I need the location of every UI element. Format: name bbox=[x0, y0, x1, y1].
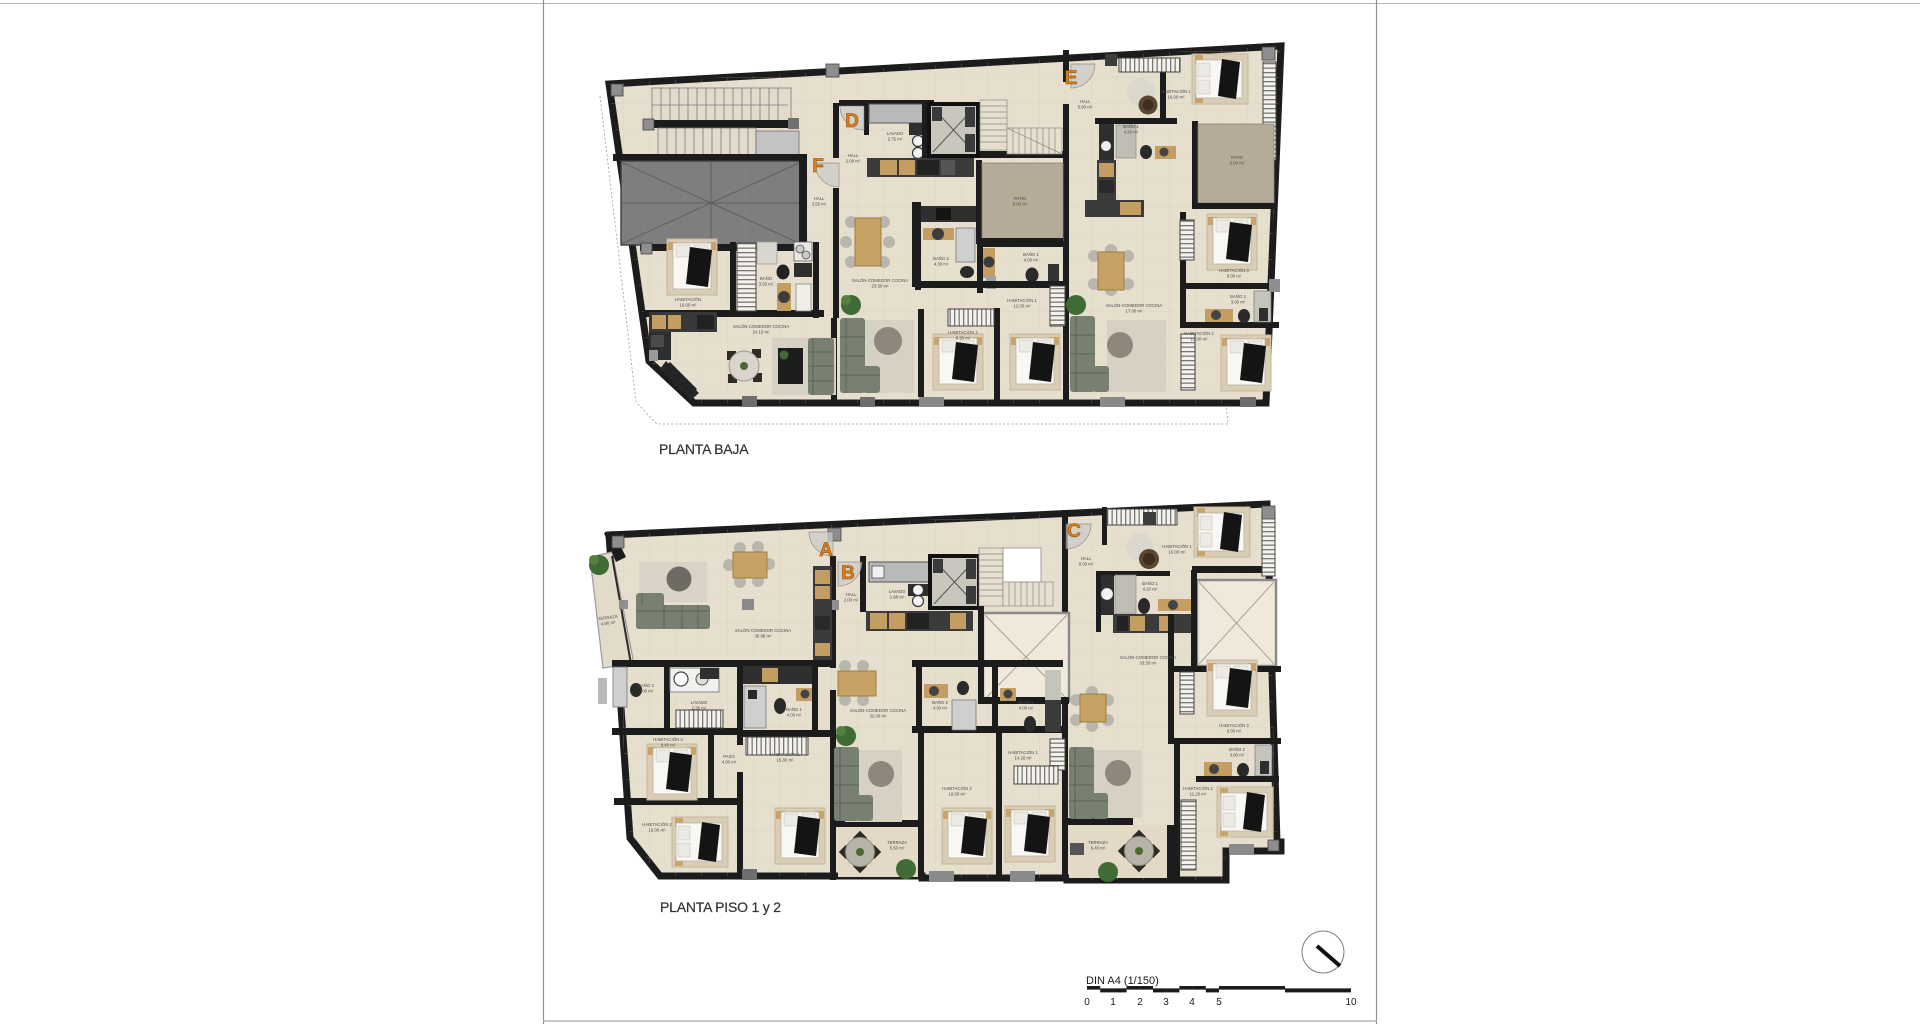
svg-text:A: A bbox=[819, 540, 833, 561]
svg-text:32.00 m²: 32.00 m² bbox=[870, 714, 888, 719]
svg-text:4.00 m²: 4.00 m² bbox=[1024, 258, 1039, 263]
svg-text:HABITACIÓN 2: HABITACIÓN 2 bbox=[948, 330, 978, 335]
svg-text:12.00 m²: 12.00 m² bbox=[1014, 304, 1032, 309]
svg-text:C: C bbox=[1067, 521, 1081, 542]
svg-text:6.40 m²: 6.40 m² bbox=[1091, 846, 1106, 851]
svg-text:HABITACIÓN 3: HABITACIÓN 3 bbox=[653, 737, 683, 742]
svg-text:9.00 m²: 9.00 m² bbox=[1230, 161, 1245, 166]
svg-text:1.98 m²: 1.98 m² bbox=[890, 595, 905, 600]
svg-text:9.00 m²: 9.00 m² bbox=[1227, 274, 1242, 279]
svg-text:24.10 m²: 24.10 m² bbox=[753, 330, 771, 335]
svg-text:SALÓN COMEDOR COCINA: SALÓN COMEDOR COCINA bbox=[735, 628, 791, 633]
svg-text:HABITACIÓN 1: HABITACIÓN 1 bbox=[1008, 750, 1038, 755]
svg-text:HALL: HALL bbox=[846, 592, 857, 597]
svg-text:2.76 m²: 2.76 m² bbox=[888, 137, 903, 142]
svg-text:23.50 m²: 23.50 m² bbox=[872, 284, 890, 289]
svg-text:0.00 m²: 0.00 m² bbox=[1079, 562, 1094, 567]
svg-text:BAÑO 2: BAÑO 2 bbox=[932, 700, 948, 705]
svg-text:4.00 m²: 4.00 m² bbox=[722, 760, 737, 765]
svg-text:10.00 m²: 10.00 m² bbox=[680, 303, 698, 308]
svg-text:PATIO: PATIO bbox=[1231, 155, 1244, 160]
svg-text:9.00 m²: 9.00 m² bbox=[1227, 729, 1242, 734]
svg-text:BAÑO 1: BAÑO 1 bbox=[1023, 252, 1039, 257]
svg-text:HABITACIÓN 1: HABITACIÓN 1 bbox=[1007, 298, 1037, 303]
svg-text:17.00 m²: 17.00 m² bbox=[1126, 309, 1144, 314]
svg-text:11.20 m²: 11.20 m² bbox=[1190, 792, 1207, 797]
svg-text:BAÑO 1: BAÑO 1 bbox=[1018, 700, 1034, 705]
svg-text:BAÑO: BAÑO bbox=[760, 276, 773, 281]
svg-text:SALÓN-COMEDOR COCINA: SALÓN-COMEDOR COCINA bbox=[733, 324, 789, 329]
svg-text:2.00 m²: 2.00 m² bbox=[844, 598, 859, 603]
svg-text:5.50 m²: 5.50 m² bbox=[890, 846, 905, 851]
svg-text:HABITACIÓN 2: HABITACIÓN 2 bbox=[1184, 331, 1214, 336]
svg-text:HABITACIÓN 1: HABITACIÓN 1 bbox=[770, 752, 800, 757]
svg-text:HALL: HALL bbox=[1081, 556, 1092, 561]
svg-text:PASO: PASO bbox=[723, 754, 735, 759]
svg-text:PLANTA BAJA: PLANTA BAJA bbox=[659, 441, 749, 457]
svg-text:16.00 m²: 16.00 m² bbox=[1168, 95, 1186, 100]
svg-text:HABITACIÓN: HABITACIÓN bbox=[675, 297, 701, 302]
svg-text:2.36 m²: 2.36 m² bbox=[692, 706, 707, 711]
svg-text:HALL: HALL bbox=[814, 196, 825, 201]
svg-text:19.00 m²: 19.00 m² bbox=[649, 828, 667, 833]
svg-text:E: E bbox=[1065, 68, 1078, 89]
svg-text:33.50 m²: 33.50 m² bbox=[1140, 661, 1158, 666]
svg-text:39.88 m²: 39.88 m² bbox=[755, 634, 773, 639]
svg-text:4.00 m²: 4.00 m² bbox=[787, 713, 802, 718]
svg-text:4.00 m²: 4.00 m² bbox=[1019, 706, 1034, 711]
svg-text:LAVADO: LAVADO bbox=[691, 700, 708, 705]
svg-text:4.20 m²: 4.20 m² bbox=[1124, 130, 1139, 135]
svg-text:2: 2 bbox=[1137, 997, 1143, 1008]
svg-text:16.00 m²: 16.00 m² bbox=[1169, 550, 1187, 555]
svg-text:HABITACIÓN 1: HABITACIÓN 1 bbox=[1161, 89, 1191, 94]
svg-text:BAÑO 1: BAÑO 1 bbox=[1123, 124, 1139, 129]
svg-text:3.80 m²: 3.80 m² bbox=[1230, 753, 1245, 758]
svg-text:HABITACIÓN 3: HABITACIÓN 3 bbox=[1219, 723, 1249, 728]
svg-text:14.20 m²: 14.20 m² bbox=[1015, 756, 1033, 761]
svg-text:3.55 m²: 3.55 m² bbox=[812, 202, 827, 207]
svg-text:SALÓN-COMEDOR COCINA: SALÓN-COMEDOR COCINA bbox=[1106, 303, 1162, 308]
svg-text:HALL: HALL bbox=[848, 153, 859, 158]
svg-text:4.00 m²: 4.00 m² bbox=[639, 689, 654, 694]
svg-text:4.30 m²: 4.30 m² bbox=[933, 706, 948, 711]
svg-text:HALL: HALL bbox=[1080, 99, 1091, 104]
svg-text:SALÓN-COMEDOR COCINA: SALÓN-COMEDOR COCINA bbox=[850, 708, 906, 713]
svg-text:15.80 m²: 15.80 m² bbox=[777, 758, 795, 763]
svg-text:19.60 m²: 19.60 m² bbox=[949, 792, 967, 797]
svg-text:TERRAZA: TERRAZA bbox=[887, 840, 907, 845]
svg-text:10.00 m²: 10.00 m² bbox=[1191, 337, 1209, 342]
svg-text:DIN A4 (1/150): DIN A4 (1/150) bbox=[1086, 975, 1159, 987]
svg-text:3: 3 bbox=[1163, 997, 1169, 1008]
svg-text:HABITACIÓN 2: HABITACIÓN 2 bbox=[942, 786, 972, 791]
svg-text:3.00 m²: 3.00 m² bbox=[1231, 300, 1246, 305]
svg-text:BAÑO 2: BAÑO 2 bbox=[638, 683, 654, 688]
svg-text:D: D bbox=[845, 111, 859, 132]
svg-text:5: 5 bbox=[1216, 997, 1222, 1008]
svg-text:1: 1 bbox=[1110, 997, 1116, 1008]
svg-text:4.20 m²: 4.20 m² bbox=[1143, 587, 1158, 592]
svg-text:10: 10 bbox=[1345, 997, 1357, 1008]
svg-text:0: 0 bbox=[1084, 997, 1090, 1008]
svg-text:BAÑO 1: BAÑO 1 bbox=[1142, 581, 1158, 586]
svg-text:4.30 m²: 4.30 m² bbox=[934, 262, 949, 267]
svg-text:4: 4 bbox=[1189, 997, 1195, 1008]
svg-text:9.00 m²: 9.00 m² bbox=[1013, 202, 1028, 207]
svg-text:SALÓN-COMEDOR COCINA: SALÓN-COMEDOR COCINA bbox=[852, 278, 908, 283]
svg-text:HABITACIÓN 3: HABITACIÓN 3 bbox=[1219, 268, 1249, 273]
svg-text:8.30 m²: 8.30 m² bbox=[956, 336, 971, 341]
svg-text:LAVADO: LAVADO bbox=[889, 589, 906, 594]
svg-text:LAVADO: LAVADO bbox=[887, 131, 904, 136]
svg-text:PLANTA PISO 1 y 2: PLANTA PISO 1 y 2 bbox=[660, 899, 781, 915]
svg-text:SALÓN-COMEDOR COCINA: SALÓN-COMEDOR COCINA bbox=[1120, 655, 1176, 660]
svg-text:F: F bbox=[812, 156, 824, 177]
svg-text:9.40 m²: 9.40 m² bbox=[661, 743, 676, 748]
svg-text:HABITACIÓN 1: HABITACIÓN 1 bbox=[1162, 544, 1192, 549]
svg-text:B: B bbox=[841, 563, 855, 584]
svg-text:3.50 m²: 3.50 m² bbox=[759, 282, 774, 287]
svg-text:BAÑO 2: BAÑO 2 bbox=[933, 256, 949, 261]
svg-text:HABITACIÓN 2: HABITACIÓN 2 bbox=[1183, 786, 1213, 791]
svg-text:TERRAZA: TERRAZA bbox=[1088, 840, 1108, 845]
svg-text:HABITACIÓN 2: HABITACIÓN 2 bbox=[642, 822, 672, 827]
svg-text:BAÑO 2: BAÑO 2 bbox=[1230, 294, 1246, 299]
svg-text:5.90 m²: 5.90 m² bbox=[1078, 105, 1093, 110]
svg-text:2.08 m²: 2.08 m² bbox=[846, 159, 861, 164]
svg-text:BAÑO 1: BAÑO 1 bbox=[786, 707, 802, 712]
svg-text:PATIO: PATIO bbox=[1014, 196, 1027, 201]
svg-text:BAÑO 2: BAÑO 2 bbox=[1229, 747, 1245, 752]
